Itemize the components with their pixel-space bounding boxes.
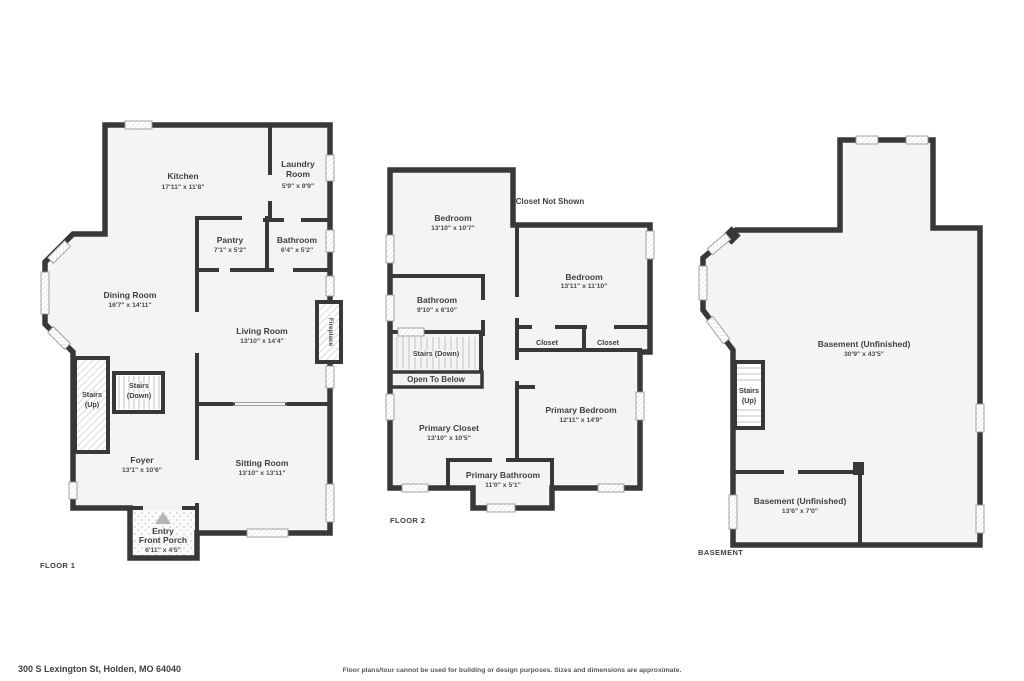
floorplan-canvas: Fireplace Kitchen 17'11" x 11'8" Laundry…: [0, 0, 1024, 681]
bedroom1-dims: 13'10" x 10'7": [431, 225, 475, 232]
dining-dims: 16'7" x 14'11": [108, 302, 151, 309]
bathroom2-dims: 9'10" x 6'10": [417, 307, 457, 314]
laundry-dims: 5'9" x 9'9": [282, 183, 314, 190]
basement-main-dims: 30'9" x 43'5": [844, 351, 884, 358]
bathroom2-label: Bathroom: [417, 295, 458, 305]
window-marker: [326, 484, 334, 522]
bathroom1-dims: 6'4" x 5'2": [281, 247, 313, 254]
window-marker: [646, 231, 654, 259]
foyer-label: Foyer: [130, 455, 154, 465]
window-marker: [41, 272, 49, 314]
foyer-dims: 13'1" x 10'6": [122, 467, 162, 474]
basement-caption: BASEMENT: [698, 548, 743, 557]
kitchen-dims: 17'11" x 11'8": [162, 184, 205, 191]
window-marker: [598, 484, 624, 492]
bedroom2-dims: 13'11" x 11'10": [561, 283, 608, 290]
window-marker: [487, 504, 515, 512]
primary-bathroom-label: Primary Bathroom: [466, 470, 541, 480]
floor2-caption: FLOOR 2: [390, 516, 425, 525]
window-marker: [386, 235, 394, 263]
window-marker: [247, 529, 288, 537]
window-marker: [326, 276, 334, 296]
kitchen-label: Kitchen: [167, 171, 198, 181]
window-marker: [398, 328, 424, 336]
basement-plan: Basement (Unfinished) 30'9" x 43'5" Stai…: [698, 136, 984, 557]
closet-a-label: Closet: [536, 338, 559, 347]
open-to-below-label: Open To Below: [407, 375, 465, 384]
primary-bedroom-label: Primary Bedroom: [545, 405, 617, 415]
laundry-label-line2: Room: [286, 169, 311, 179]
window-marker: [326, 366, 334, 388]
basement-stairs-label-line1: Stairs: [739, 386, 759, 395]
basement-main-label: Basement (Unfinished): [818, 339, 911, 349]
window-marker: [636, 392, 644, 420]
window-marker: [326, 155, 334, 181]
basement-lower-dims: 13'6" x 7'0": [782, 508, 818, 515]
window-marker: [402, 484, 428, 492]
bathroom1-label: Bathroom: [277, 235, 318, 245]
primary-bedroom-dims: 12'11" x 14'9": [559, 417, 602, 424]
window-marker: [69, 482, 77, 499]
property-address: 300 S Lexington St, Holden, MO 64040: [18, 664, 181, 674]
floor2-plan: Bedroom 13'10" x 10'7" Closet Not Shown …: [386, 170, 654, 525]
floorplan-page: Fireplace Kitchen 17'11" x 11'8" Laundry…: [0, 0, 1024, 681]
primary-closet-label: Primary Closet: [419, 423, 479, 433]
living-label: Living Room: [236, 326, 288, 336]
floor2-stairs-down-label: Stairs (Down): [413, 349, 460, 358]
primary-bathroom-dims: 11'0" x 5'1": [485, 482, 521, 489]
window-marker: [125, 121, 152, 129]
window-marker: [976, 404, 984, 432]
pantry-label: Pantry: [217, 235, 244, 245]
floor1-plan: Fireplace Kitchen 17'11" x 11'8" Laundry…: [40, 121, 341, 570]
sitting-label: Sitting Room: [236, 458, 289, 468]
closet-not-shown-note: Closet Not Shown: [516, 197, 585, 206]
window-marker: [906, 136, 928, 144]
footer: 300 S Lexington St, Holden, MO 64040 Flo…: [18, 664, 681, 674]
window-marker: [856, 136, 878, 144]
closet-b-label: Closet: [597, 338, 620, 347]
primary-closet-dims: 13'10" x 10'5": [427, 435, 471, 442]
basement-lower-label: Basement (Unfinished): [754, 496, 847, 506]
basement-wall-post: [853, 462, 864, 475]
porch-dims: 6'11" x 4'5": [145, 547, 181, 554]
living-dims: 13'10" x 14'4": [240, 338, 284, 345]
laundry-label-line1: Laundry: [281, 159, 315, 169]
fireplace-label: Fireplace: [327, 318, 334, 347]
window-marker: [699, 266, 707, 300]
window-marker: [729, 495, 737, 529]
window-marker: [326, 230, 334, 252]
sitting-dims: 13'10" x 13'11": [238, 470, 285, 477]
bedroom2-label: Bedroom: [565, 272, 603, 282]
floor1-caption: FLOOR 1: [40, 561, 75, 570]
stairs-down-label-line1: Stairs: [129, 381, 149, 390]
stairs-down-label-line2: (Down): [127, 391, 152, 400]
stairs-up-label-line1: Stairs: [82, 390, 102, 399]
pantry-dims: 7'1" x 5'2": [214, 247, 246, 254]
bedroom1-label: Bedroom: [434, 213, 472, 223]
disclaimer-text: Floor plans/tour cannot be used for buil…: [343, 667, 682, 674]
basement-stairs-label-line2: (Up): [742, 396, 757, 405]
window-marker: [976, 505, 984, 533]
stairs-up-label-line2: (Up): [85, 400, 100, 409]
dining-label: Dining Room: [104, 290, 157, 300]
window-marker: [386, 394, 394, 420]
window-marker: [386, 295, 394, 321]
porch-label-line2: Front Porch: [139, 535, 187, 545]
basement-stairs-up-area: [735, 362, 763, 428]
